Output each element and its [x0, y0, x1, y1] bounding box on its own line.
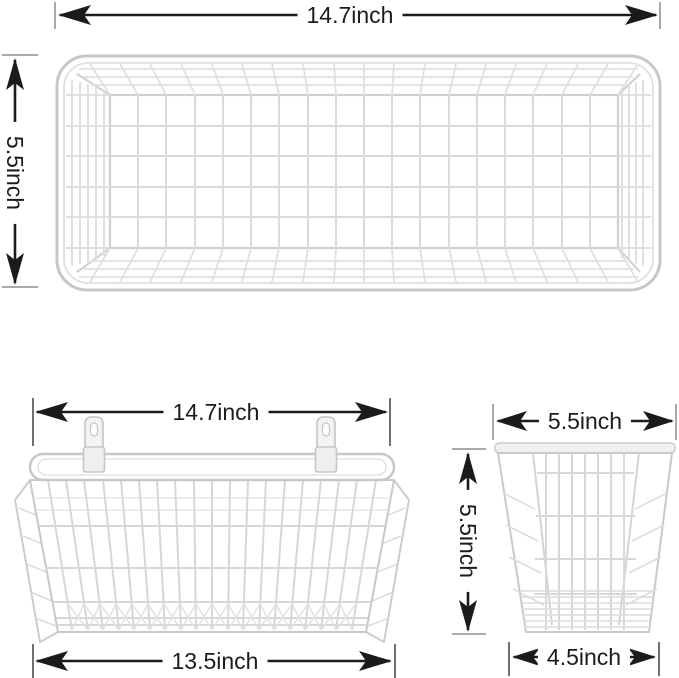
mounting-bracket — [316, 417, 337, 472]
side-view-top-width-label: 5.5inch — [539, 408, 631, 434]
top-view-height-label: 5.5inch — [2, 122, 28, 224]
dimension-tick — [658, 642, 660, 676]
dimension-tick — [394, 644, 396, 678]
side-view-height-label: 5.5inch — [455, 490, 481, 592]
product-dimension-diagram: 14.7inch 5.5inch 14.7inch — [0, 0, 679, 678]
mounting-bracket — [84, 417, 105, 472]
front-view-top-width-label: 14.7inch — [164, 399, 269, 425]
side-view-bottom-width-label: 4.5inch — [538, 644, 630, 670]
top-view-width-label: 14.7inch — [298, 2, 403, 28]
front-view-bottom-width-label: 13.5inch — [163, 648, 268, 674]
front-view-basket — [8, 414, 420, 646]
side-view-basket — [489, 439, 679, 639]
top-view-basket — [53, 52, 664, 294]
